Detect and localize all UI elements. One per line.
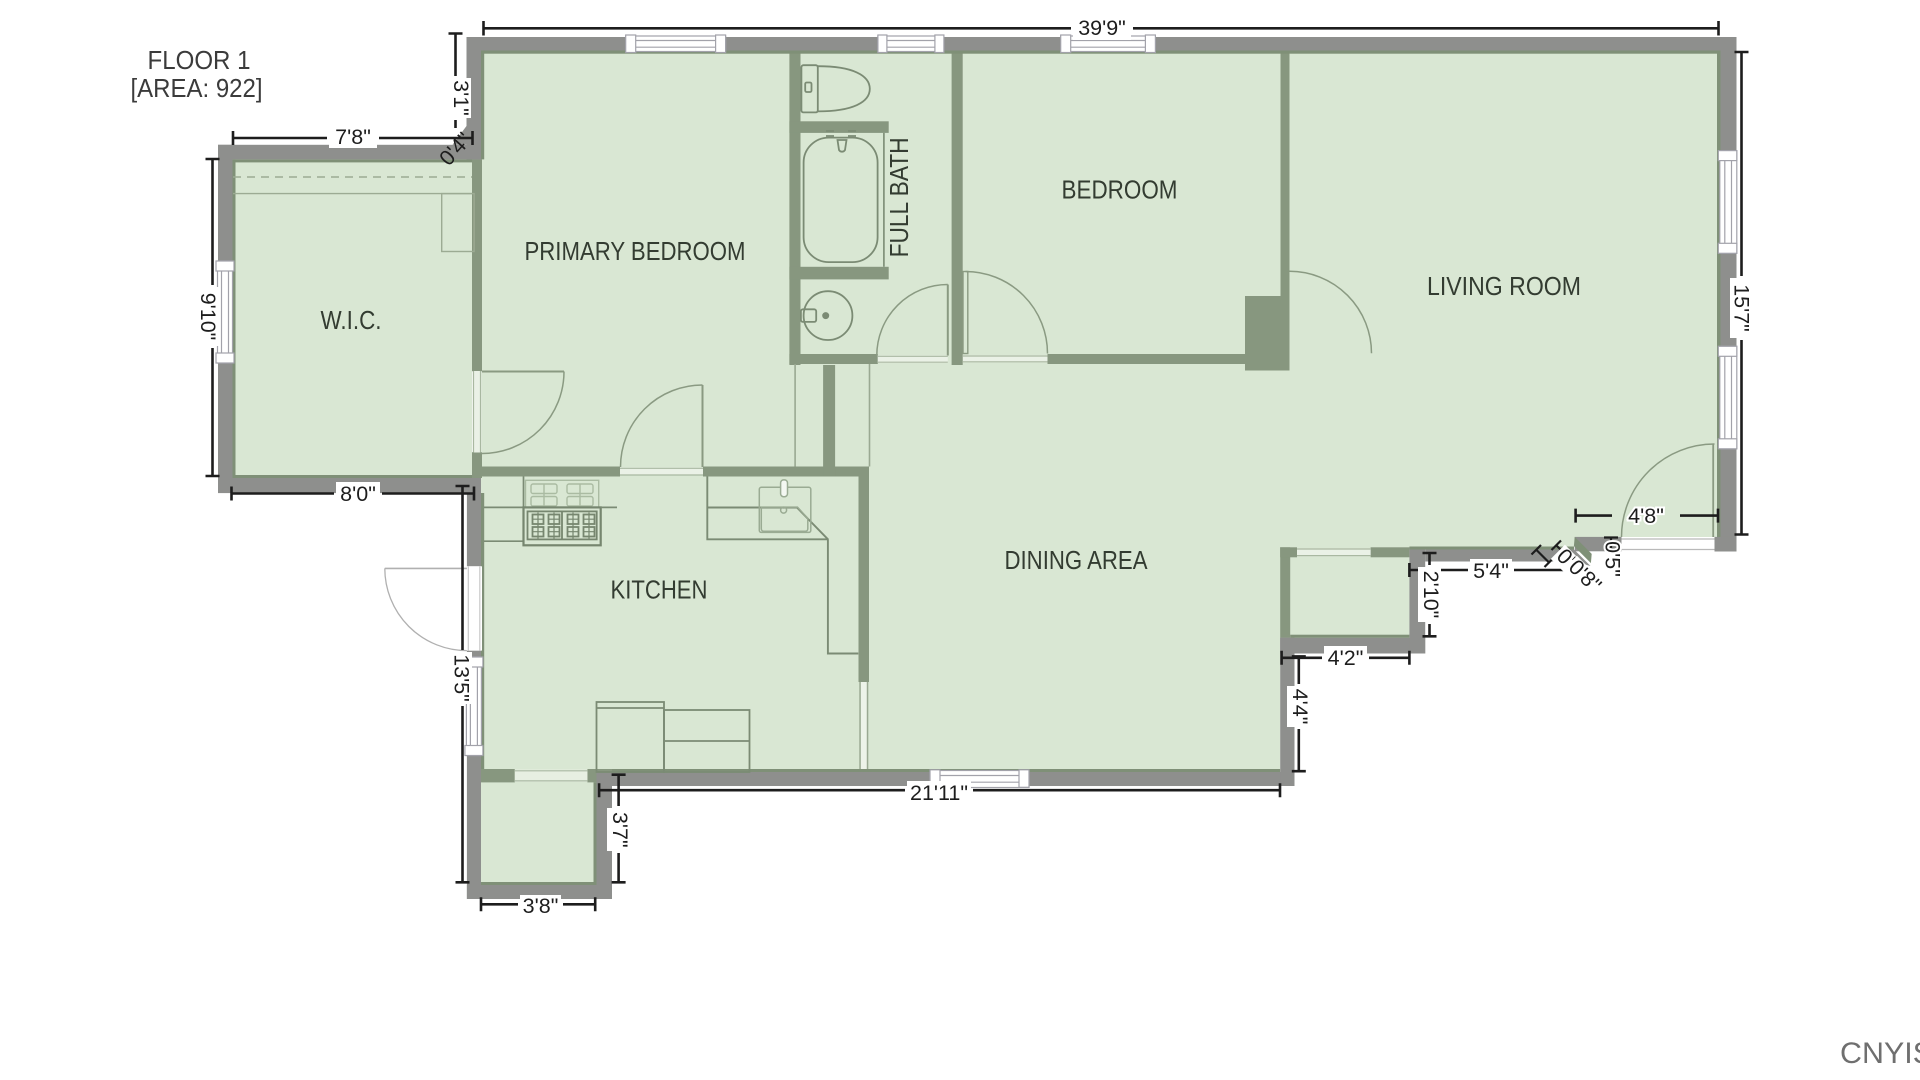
svg-text:4'8": 4'8" bbox=[1628, 504, 1664, 528]
svg-text:3'7": 3'7" bbox=[608, 812, 632, 848]
svg-text:KITCHEN: KITCHEN bbox=[611, 575, 708, 605]
svg-text:21'11": 21'11" bbox=[910, 781, 968, 805]
svg-text:39'9": 39'9" bbox=[1078, 16, 1126, 40]
svg-text:W.I.C.: W.I.C. bbox=[321, 305, 382, 335]
svg-text:LIVING ROOM: LIVING ROOM bbox=[1427, 271, 1581, 301]
svg-text:PRIMARY BEDROOM: PRIMARY BEDROOM bbox=[525, 236, 746, 266]
svg-text:5'4": 5'4" bbox=[1473, 559, 1509, 583]
svg-text:0'5": 0'5" bbox=[1600, 541, 1624, 577]
svg-text:9'10": 9'10" bbox=[196, 293, 220, 341]
svg-text:2'10": 2'10" bbox=[1419, 571, 1443, 619]
svg-text:FLOOR 1: FLOOR 1 bbox=[148, 45, 251, 75]
svg-text:7'8": 7'8" bbox=[335, 125, 371, 149]
svg-text:4'2": 4'2" bbox=[1328, 646, 1364, 670]
svg-text:BEDROOM: BEDROOM bbox=[1062, 175, 1178, 205]
svg-text:13'5": 13'5" bbox=[449, 654, 473, 702]
svg-text:FULL BATH: FULL BATH bbox=[884, 137, 914, 257]
svg-text:DINING AREA: DINING AREA bbox=[1005, 545, 1149, 575]
svg-text:3'8": 3'8" bbox=[523, 894, 559, 918]
svg-text:[AREA: 922]: [AREA: 922] bbox=[131, 73, 263, 103]
svg-text:CNYIS: CNYIS bbox=[1840, 1037, 1920, 1070]
svg-text:15'7": 15'7" bbox=[1729, 284, 1753, 332]
svg-text:4'4": 4'4" bbox=[1288, 689, 1312, 725]
svg-text:8'0": 8'0" bbox=[340, 482, 376, 506]
svg-text:3'1": 3'1" bbox=[449, 80, 473, 116]
